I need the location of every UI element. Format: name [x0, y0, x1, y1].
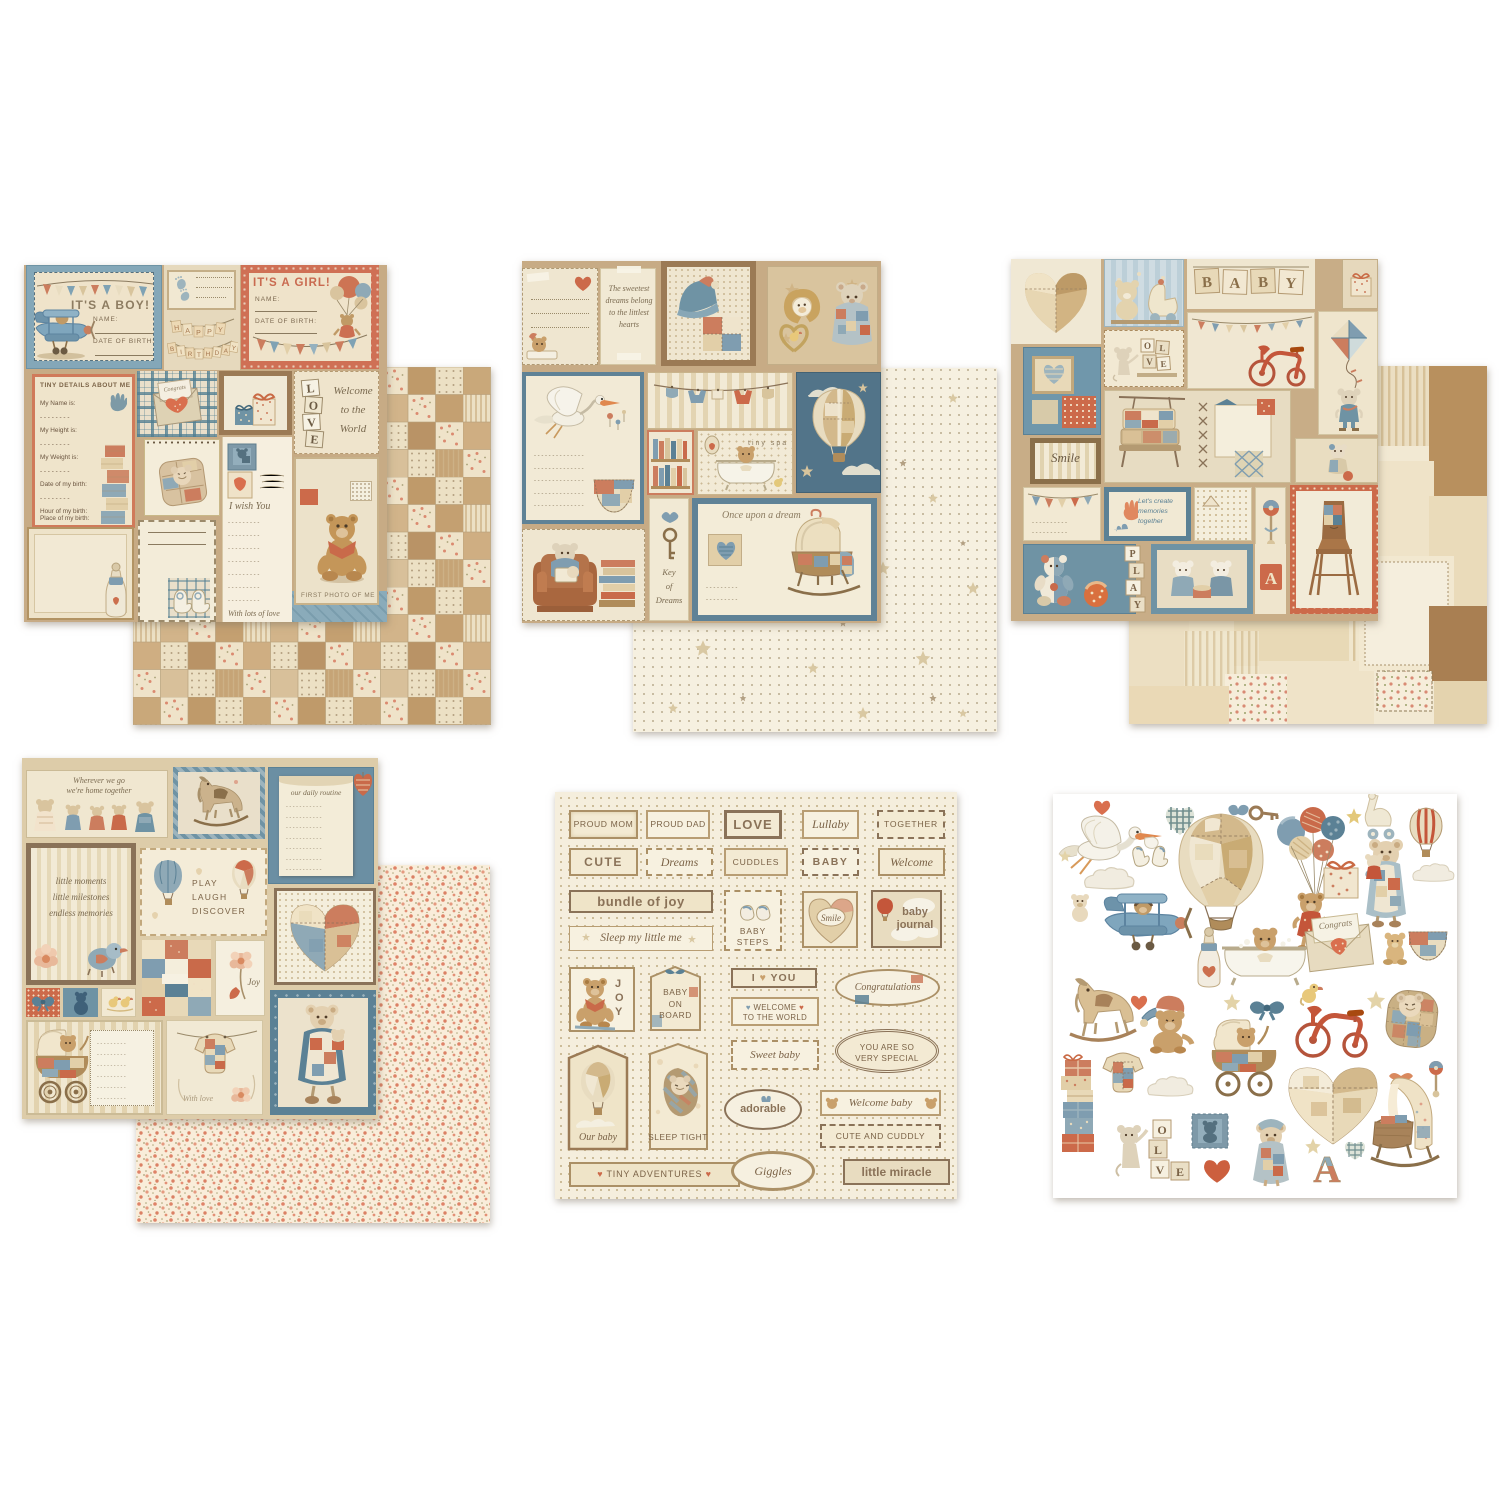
svg-text:L: L: [1154, 1143, 1162, 1157]
svg-text:H: H: [205, 351, 210, 358]
svg-text:O: O: [1144, 341, 1151, 351]
svg-text:A: A: [185, 328, 190, 335]
svg-text:H: H: [174, 325, 180, 332]
svg-text:SLEEP TIGHT: SLEEP TIGHT: [648, 1132, 708, 1142]
svg-text:tiny spa: tiny spa: [748, 440, 788, 447]
svg-text:L: L: [306, 381, 315, 396]
svg-text:R: R: [188, 351, 193, 358]
svg-text:E: E: [1176, 1165, 1184, 1179]
svg-text:E: E: [310, 432, 319, 447]
svg-text:Our baby: Our baby: [579, 1132, 618, 1143]
svg-text:Y: Y: [1285, 276, 1297, 293]
svg-text:T: T: [197, 352, 201, 359]
svg-text:P: P: [1129, 549, 1135, 560]
svg-text:V: V: [1146, 357, 1153, 367]
svg-text:With love: With love: [183, 1094, 213, 1103]
svg-text:E: E: [1160, 359, 1167, 369]
svg-text:P: P: [207, 329, 212, 336]
svg-text:L: L: [1159, 343, 1166, 353]
svg-text:P: P: [196, 330, 201, 337]
svg-text:V: V: [307, 415, 317, 429]
svg-text:A: A: [1130, 583, 1138, 594]
svg-text:B: B: [1258, 275, 1269, 291]
svg-text:Smile: Smile: [821, 913, 841, 923]
svg-text:B: B: [1202, 275, 1213, 292]
svg-text:A: A: [1265, 569, 1278, 588]
svg-text:Y: Y: [1134, 600, 1142, 611]
svg-text:O: O: [1157, 1123, 1166, 1137]
svg-text:O: O: [308, 398, 318, 413]
svg-text:A: A: [1229, 276, 1241, 292]
svg-text:L: L: [1133, 566, 1140, 577]
svg-text:V: V: [1156, 1163, 1165, 1177]
